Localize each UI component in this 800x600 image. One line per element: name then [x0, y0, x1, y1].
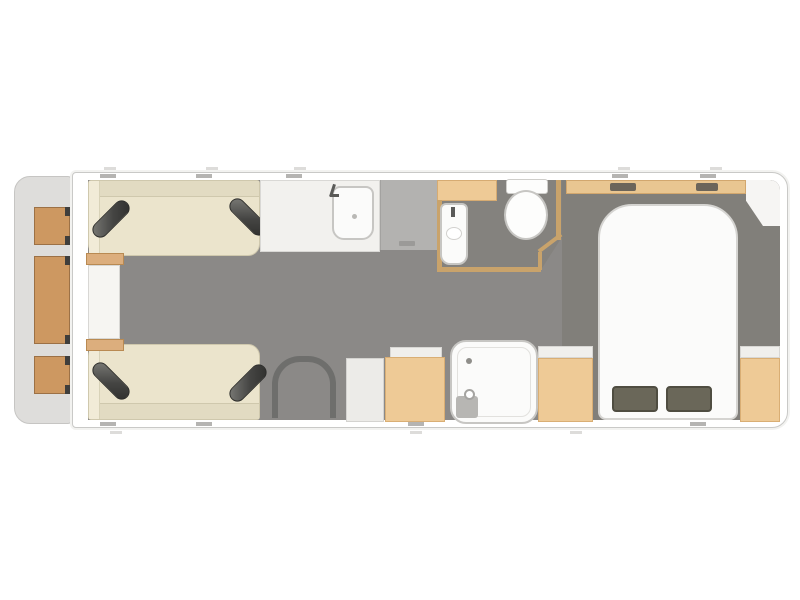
dimension-dash [410, 431, 422, 434]
wall-tick [196, 422, 212, 426]
wall-tick [100, 422, 116, 426]
washroom-wall [437, 267, 541, 272]
sink-tap-icon [330, 194, 339, 197]
wall-tick [100, 174, 116, 178]
dimension-dash [206, 167, 218, 170]
dimension-dash [294, 167, 306, 170]
wall-tick [690, 422, 706, 426]
wardrobe-top-strip [538, 346, 593, 358]
washroom-wall [556, 180, 561, 240]
locker-cap [65, 385, 70, 394]
wall-tick [286, 174, 302, 178]
locker-cap [65, 236, 70, 245]
chest-table [88, 265, 120, 339]
entrance-door-arch [272, 356, 336, 418]
front-locker-middle [34, 256, 70, 344]
washroom-cabinet [437, 180, 497, 201]
sink-drain-icon [352, 214, 357, 219]
chest-table-trim [86, 253, 124, 265]
chest-table-trim [86, 339, 124, 351]
shower-drain-icon [466, 358, 472, 364]
wardrobe [538, 358, 593, 422]
dimension-dash [110, 431, 122, 434]
dimension-dash [618, 167, 630, 170]
locker-cap [65, 207, 70, 216]
dinette-cabinet [385, 357, 445, 422]
pillow [612, 386, 658, 412]
sofa-backrest [89, 403, 259, 419]
dimension-dash [710, 167, 722, 170]
washroom-wall [538, 252, 542, 270]
hob-worktop [380, 180, 437, 250]
vent-icon [399, 241, 415, 246]
front-locker-top [34, 207, 70, 245]
bedside-cabinet [740, 358, 780, 422]
dimension-dash [104, 167, 116, 170]
overhead-shelf [566, 180, 746, 194]
shelf-handle-icon [696, 183, 718, 191]
basin-bowl-icon [446, 227, 462, 240]
locker-cap [65, 356, 70, 365]
pillow [666, 386, 712, 412]
basin-tap-icon [451, 207, 455, 217]
shelf-handle-icon [610, 183, 636, 191]
sofa-armrest [89, 181, 100, 255]
wall-tick [612, 174, 628, 178]
sofa-armrest [89, 345, 100, 419]
locker-cap [65, 335, 70, 344]
wall-tick [408, 422, 424, 426]
bedside-top-strip [740, 346, 780, 358]
toilet [504, 190, 548, 240]
locker-cap [65, 256, 70, 265]
front-locker-bottom [34, 356, 70, 394]
sofa-backrest [89, 181, 259, 197]
dimension-dash [570, 431, 582, 434]
vanity-basin [440, 203, 468, 265]
shower-head-icon [464, 389, 475, 400]
wall-tick [700, 174, 716, 178]
caravan-floorplan [0, 0, 800, 600]
wall-tick [196, 174, 212, 178]
fridge-cabinet [346, 358, 384, 422]
shower-cubicle [450, 340, 538, 424]
